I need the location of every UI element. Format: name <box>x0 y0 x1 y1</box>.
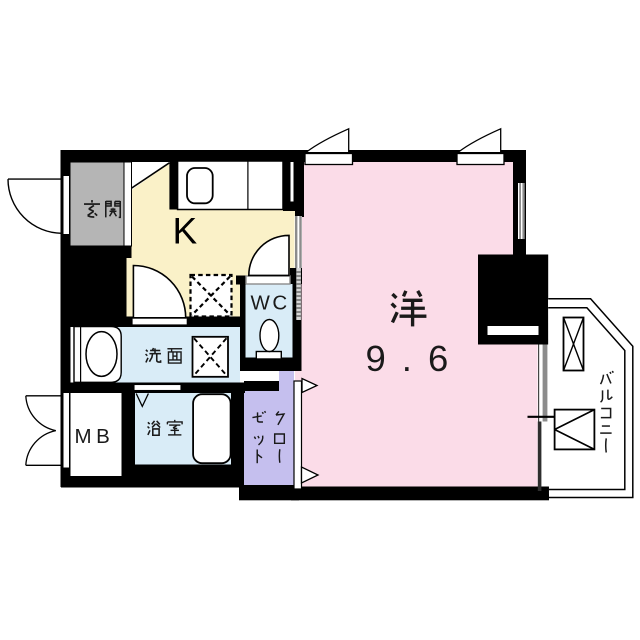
svg-text:K: K <box>173 211 198 252</box>
svg-text:WC: WC <box>251 292 290 315</box>
svg-text:9.6: 9.6 <box>366 338 465 379</box>
svg-text:MB: MB <box>75 425 115 448</box>
